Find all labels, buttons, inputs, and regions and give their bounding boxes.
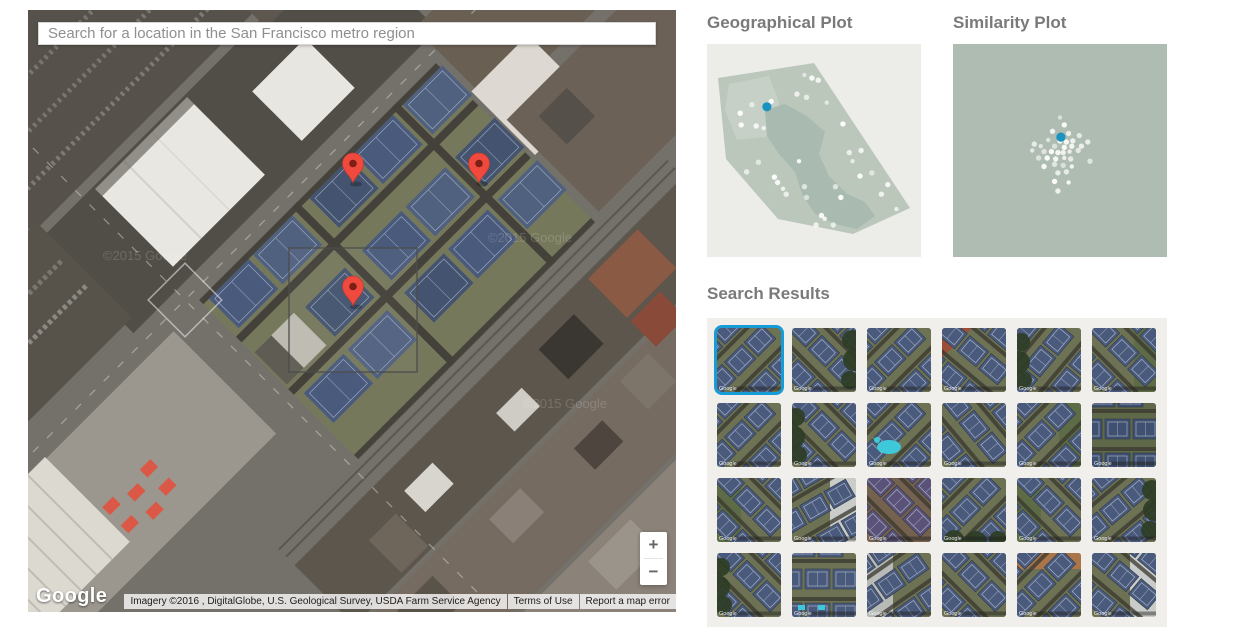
result-point — [823, 217, 827, 221]
result-thumbnail[interactable]: Google — [867, 328, 931, 392]
thumbnail-google-watermark: Google — [794, 536, 812, 542]
result-thumbnail[interactable]: Google — [942, 328, 1006, 392]
imagery-watermark: ©2015 Google — [523, 396, 607, 411]
result-point — [1046, 138, 1050, 142]
result-point — [739, 122, 744, 127]
result-point — [754, 123, 759, 128]
result-point — [813, 222, 818, 227]
result-point — [804, 95, 809, 100]
results-grid: GoogleGoogleGoogleGoogleGoogleGoogleGoog… — [717, 328, 1157, 617]
selected-point — [762, 102, 771, 111]
search-input[interactable] — [38, 22, 656, 45]
result-point — [1069, 144, 1074, 149]
zoom-control: + − — [640, 532, 667, 585]
result-point — [816, 78, 821, 83]
result-point — [756, 160, 761, 165]
result-point — [738, 111, 743, 116]
result-point — [804, 195, 809, 200]
result-point — [1061, 150, 1066, 155]
result-point — [781, 187, 785, 191]
thumbnail-google-watermark: Google — [869, 536, 887, 542]
result-point — [1085, 139, 1090, 144]
result-point — [784, 192, 789, 197]
result-point — [1076, 148, 1081, 153]
result-thumbnail[interactable]: Google — [867, 403, 931, 467]
thumbnail-google-watermark: Google — [1019, 611, 1037, 617]
result-thumbnail[interactable]: Google — [1017, 403, 1081, 467]
result-point — [1036, 155, 1041, 160]
terms-of-use-link[interactable]: Terms of Use — [508, 594, 579, 609]
result-point — [850, 159, 854, 163]
thumbnail-google-watermark: Google — [869, 611, 887, 617]
result-thumbnail[interactable]: Google — [1017, 553, 1081, 617]
result-point — [1062, 122, 1067, 127]
result-point — [1061, 163, 1066, 168]
thumbnail-google-watermark: Google — [944, 386, 962, 392]
result-point — [1066, 131, 1071, 136]
result-thumbnail[interactable]: Google — [1092, 553, 1156, 617]
page: { "accent": { "selected_blue": "#189cd8"… — [0, 0, 1244, 636]
result-point — [1041, 149, 1046, 154]
result-point — [885, 182, 890, 187]
result-point — [857, 173, 862, 178]
result-point — [1052, 144, 1057, 149]
result-point — [1052, 162, 1057, 167]
result-point — [1030, 148, 1034, 152]
thumbnail-google-watermark: Google — [719, 461, 737, 467]
result-point — [831, 222, 836, 227]
result-thumbnail[interactable]: Google — [1092, 403, 1156, 467]
similarity-plot-title: Similarity Plot — [953, 13, 1066, 33]
thumbnail-google-watermark: Google — [1094, 611, 1112, 617]
thumbnail-google-watermark: Google — [1019, 386, 1037, 392]
thumbnail-google-watermark: Google — [869, 461, 887, 467]
result-thumbnail[interactable]: Google — [867, 553, 931, 617]
selected-point — [1056, 133, 1065, 142]
thumbnail-google-watermark: Google — [794, 386, 812, 392]
thumbnail-google-watermark: Google — [1094, 386, 1112, 392]
search-results-panel: GoogleGoogleGoogleGoogleGoogleGoogleGoog… — [707, 318, 1167, 627]
result-point — [1052, 179, 1057, 184]
result-point — [802, 184, 807, 189]
result-point — [794, 91, 799, 96]
thumbnail-google-watermark: Google — [794, 611, 812, 617]
result-point — [1079, 144, 1084, 149]
result-point — [1045, 155, 1050, 160]
result-thumbnail[interactable]: Google — [1092, 478, 1156, 542]
result-thumbnail[interactable]: Google — [792, 328, 856, 392]
result-thumbnail[interactable]: Google — [792, 403, 856, 467]
result-point — [802, 73, 806, 77]
map-canvas[interactable]: ©2015 Google©2015 Google©2015 Google + −… — [28, 10, 676, 612]
result-thumbnail[interactable]: Google — [717, 478, 781, 542]
result-point — [1062, 145, 1067, 150]
result-point — [1066, 180, 1070, 184]
result-point — [797, 159, 801, 163]
result-point — [894, 207, 898, 211]
result-point — [847, 150, 852, 155]
result-thumbnail[interactable]: Google — [717, 553, 781, 617]
result-thumbnail[interactable]: Google — [1017, 478, 1081, 542]
result-thumbnail[interactable]: Google — [942, 403, 1006, 467]
search-results-title: Search Results — [707, 284, 830, 304]
result-thumbnail[interactable]: Google — [1017, 328, 1081, 392]
thumbnail-google-watermark: Google — [719, 536, 737, 542]
geographical-plot — [707, 44, 921, 257]
thumbnail-google-watermark: Google — [869, 386, 887, 392]
result-point — [1064, 139, 1069, 144]
result-point — [749, 102, 754, 107]
result-thumbnail[interactable]: Google — [942, 553, 1006, 617]
thumbnail-google-watermark: Google — [719, 611, 737, 617]
zoom-in-button[interactable]: + — [640, 532, 667, 558]
thumbnail-google-watermark: Google — [1019, 461, 1037, 467]
result-thumbnail[interactable]: Google — [792, 478, 856, 542]
result-thumbnail[interactable]: Google — [717, 403, 781, 467]
map-attribution: Imagery ©2016 , DigitalGlobe, U.S. Geolo… — [123, 594, 676, 609]
thumbnail-google-watermark: Google — [794, 461, 812, 467]
result-point — [1055, 170, 1060, 175]
thumbnail-google-watermark: Google — [944, 536, 962, 542]
result-point — [1062, 156, 1066, 160]
result-point — [1068, 156, 1073, 161]
satellite-map[interactable]: ©2015 Google©2015 Google©2015 Google — [28, 10, 676, 612]
result-point — [744, 169, 749, 174]
result-point — [869, 170, 874, 175]
thumbnail-google-watermark: Google — [944, 461, 962, 467]
imagery-credit: Imagery ©2016 , DigitalGlobe, U.S. Geolo… — [124, 594, 506, 609]
result-point — [1058, 115, 1062, 119]
result-point — [762, 126, 766, 130]
result-point — [879, 192, 884, 197]
result-thumbnail[interactable]: Google — [867, 478, 931, 542]
result-thumbnail[interactable]: Google — [1092, 328, 1156, 392]
result-point — [1077, 133, 1082, 138]
similarity-plot — [953, 44, 1167, 257]
report-map-error-link[interactable]: Report a map error — [580, 594, 676, 609]
result-thumbnail[interactable]: Google — [792, 553, 856, 617]
result-thumbnail-selected[interactable]: Google — [717, 328, 781, 392]
thumbnail-google-watermark: Google — [1019, 536, 1037, 542]
result-point — [1070, 138, 1075, 143]
imagery-watermark: ©2015 Google — [488, 230, 572, 245]
result-point — [1039, 144, 1043, 148]
result-point — [1067, 149, 1071, 153]
selection-box — [289, 248, 417, 372]
thumbnail-google-watermark: Google — [944, 611, 962, 617]
result-point — [1070, 164, 1074, 168]
geographical-plot-title: Geographical Plot — [707, 13, 852, 33]
imagery-watermark: ©2015 Google — [103, 248, 187, 263]
zoom-out-button[interactable]: − — [640, 559, 667, 585]
result-thumbnail[interactable]: Google — [942, 478, 1006, 542]
result-point — [833, 184, 838, 189]
result-point — [825, 100, 829, 104]
google-logo[interactable]: Google — [36, 585, 107, 608]
result-point — [1053, 156, 1058, 161]
result-point — [809, 75, 814, 80]
result-point — [1050, 129, 1055, 134]
result-point — [775, 180, 780, 185]
result-point — [840, 121, 845, 126]
result-point — [858, 148, 863, 153]
thumbnail-google-watermark: Google — [1094, 536, 1112, 542]
result-point — [1032, 141, 1037, 146]
result-point — [1041, 164, 1046, 169]
thumbnail-google-watermark: Google — [719, 386, 737, 392]
result-point — [838, 195, 843, 200]
result-point — [1049, 149, 1054, 154]
result-point — [1055, 188, 1060, 193]
result-point — [772, 174, 777, 179]
result-point — [1087, 159, 1092, 164]
result-point — [1055, 150, 1060, 155]
thumbnail-google-watermark: Google — [1094, 461, 1112, 467]
result-point — [1064, 169, 1069, 174]
